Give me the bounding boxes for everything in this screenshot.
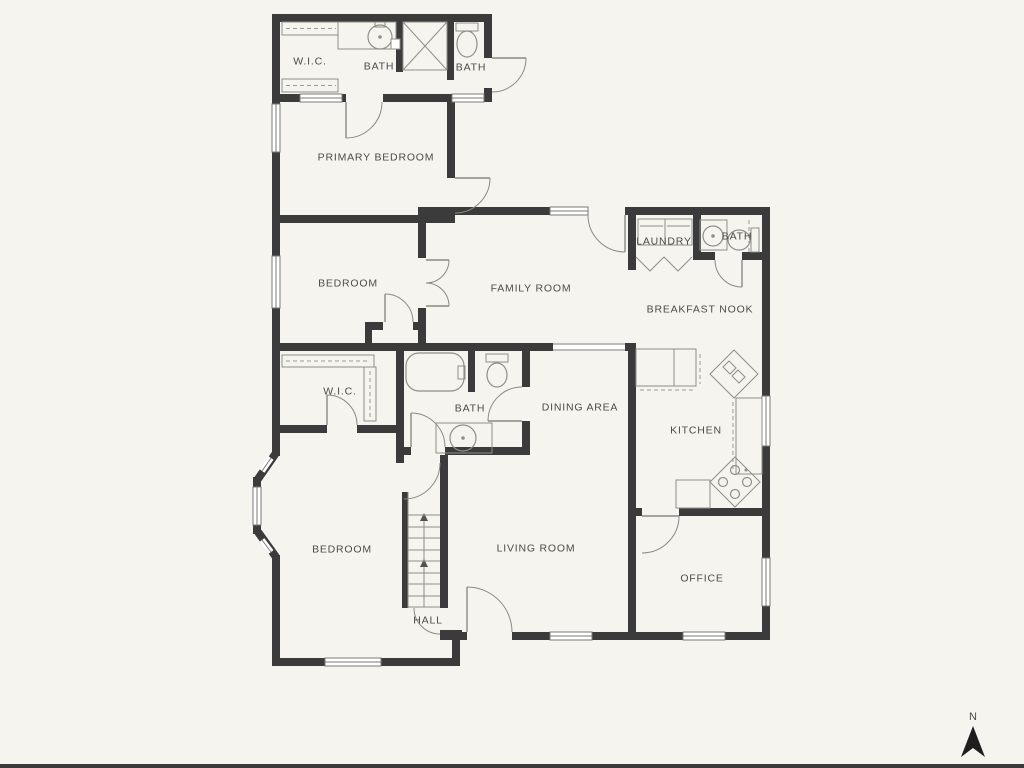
wall (357, 425, 396, 433)
door-arc (346, 102, 382, 138)
wall (272, 343, 553, 351)
wall (468, 351, 475, 392)
room-label-office: OFFICE (680, 573, 723, 585)
door-arc (411, 413, 445, 447)
wall (342, 94, 346, 102)
kitchen-counter (636, 349, 696, 386)
wall (272, 555, 280, 666)
stairs-arrow (420, 513, 428, 521)
wall (679, 508, 770, 516)
wall (440, 455, 448, 463)
wall (272, 215, 455, 223)
wall (512, 632, 550, 640)
room-label-dining-area: DINING AREA (542, 402, 618, 414)
toilet-bowl (487, 363, 507, 387)
wall (445, 447, 530, 455)
door-arc (404, 463, 440, 499)
toilet-tank (486, 354, 508, 362)
room-label-bath-top-right: BATH (456, 62, 486, 74)
north-arrow-icon (961, 726, 985, 757)
room-label-bedroom-middle: BEDROOM (318, 278, 378, 290)
door-arc (385, 294, 413, 322)
toilet-bowl (457, 31, 477, 57)
wall (628, 207, 636, 270)
wall (272, 14, 492, 22)
sink-basin (723, 361, 736, 374)
room-label-breakfast-nook: BREAKFAST NOOK (647, 304, 754, 316)
wall (272, 14, 280, 102)
door-arc (492, 58, 526, 92)
room-label-kitchen: KITCHEN (670, 425, 722, 437)
door-arc (642, 516, 679, 553)
compass-label: N (969, 711, 977, 723)
wall (396, 455, 404, 463)
burner (743, 478, 752, 487)
wall (628, 508, 642, 516)
room-label-bath-top: BATH (364, 61, 394, 73)
wall (413, 322, 426, 330)
wall (522, 343, 530, 387)
wall (447, 22, 454, 80)
room-label-living-room: LIVING ROOM (497, 543, 576, 555)
door-arc (588, 215, 625, 252)
wall (418, 215, 426, 258)
screen-bottom-edge (0, 764, 1024, 768)
floor-plan-page: W.I.C.BATHBATHPRIMARY BEDROOMBEDROOMFAMI… (0, 0, 1024, 768)
wall (396, 343, 404, 455)
kitchen-counter (676, 480, 710, 508)
shower-valve (391, 39, 400, 49)
room-label-primary-bedroom: PRIMARY BEDROOM (318, 152, 435, 164)
room-label-laundry: LAUNDRY (636, 236, 692, 248)
wall (383, 94, 452, 102)
room-label-hall: HALL (413, 615, 442, 627)
room-label-wic-top: W.I.C. (293, 56, 326, 68)
stove-unit (710, 457, 760, 507)
bifold-door (636, 257, 692, 271)
wall (742, 252, 762, 260)
floor-plan: W.I.C.BATHBATHPRIMARY BEDROOMBEDROOMFAMI… (0, 0, 1024, 768)
bathtub (406, 353, 464, 391)
burner (731, 490, 740, 499)
burner (719, 478, 728, 487)
sink-drain (711, 234, 715, 238)
room-label-bedroom-bottom: BEDROOM (312, 544, 372, 556)
wall (440, 630, 462, 640)
room-label-bath-upper-right: BATH (722, 231, 752, 243)
door-arc (426, 283, 449, 306)
wall (484, 14, 492, 58)
sink-drain (461, 436, 465, 440)
wall (272, 94, 300, 102)
door-arc (488, 387, 522, 421)
door-arc (715, 260, 742, 287)
sink-basin (732, 370, 745, 383)
wall (440, 463, 448, 608)
sink-drain (378, 35, 382, 39)
wall (272, 425, 327, 433)
wall (592, 632, 683, 640)
wall (628, 516, 636, 640)
wall (396, 447, 411, 455)
door-arc (327, 395, 357, 425)
wall (522, 421, 530, 455)
wall (418, 207, 552, 215)
door-arc (467, 587, 512, 632)
room-label-bath-middle: BATH (455, 403, 485, 415)
door-arc (426, 260, 449, 283)
wall (693, 252, 715, 260)
wall (484, 94, 492, 102)
room-label-wic-middle: W.I.C. (323, 386, 356, 398)
stove-dot (745, 469, 748, 472)
toilet-tank (456, 23, 478, 31)
bath-counter (338, 22, 396, 49)
wall (625, 207, 770, 215)
wall (447, 102, 455, 178)
stairs-arrow (420, 559, 428, 567)
burner (731, 466, 740, 475)
wall (628, 343, 636, 516)
room-label-family-room: FAMILY ROOM (491, 283, 572, 295)
wall (402, 492, 408, 608)
